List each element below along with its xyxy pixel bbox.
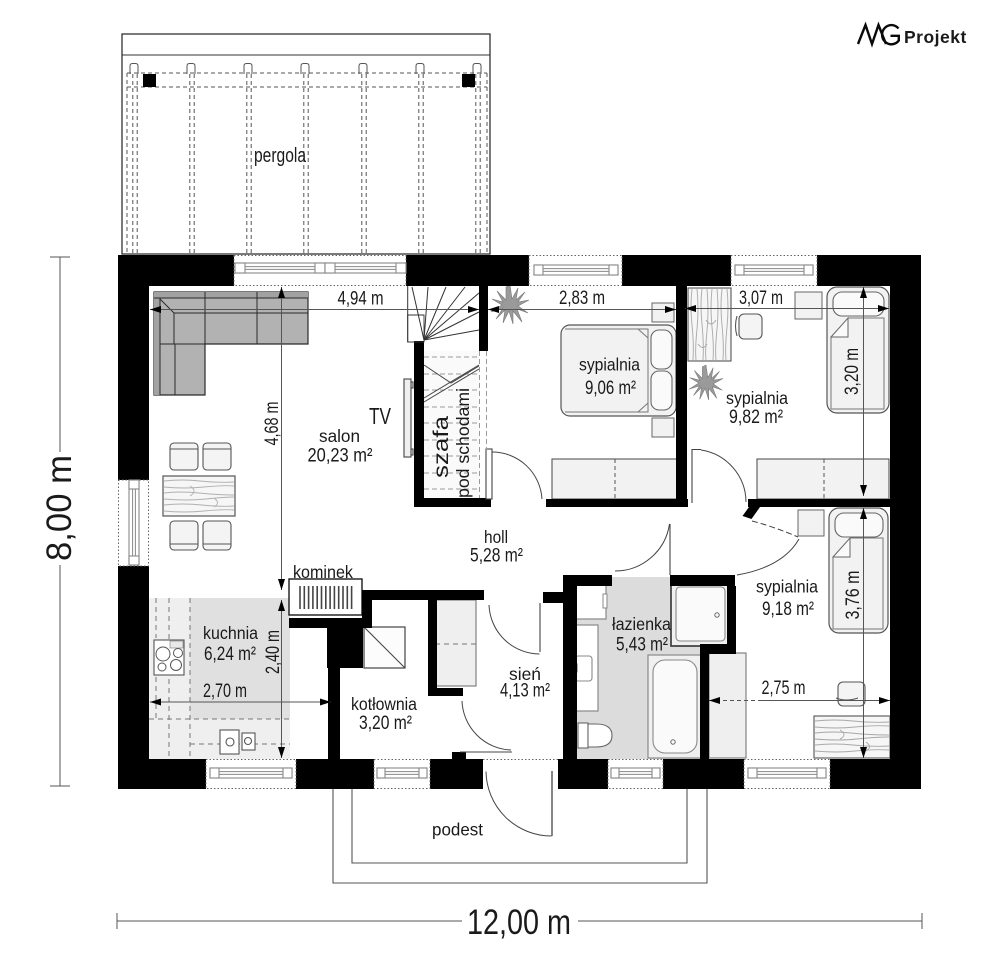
svg-text:4,68 m: 4,68 m — [262, 402, 283, 446]
svg-text:9,18 m²: 9,18 m² — [762, 599, 814, 620]
svg-text:pergola: pergola — [254, 145, 307, 167]
svg-text:3,76 m: 3,76 m — [843, 571, 864, 620]
svg-text:kotłownia: kotłownia — [351, 694, 417, 714]
svg-text:2,40 m: 2,40 m — [263, 630, 284, 674]
svg-text:sypialnia: sypialnia — [579, 355, 640, 375]
svg-text:9,82 m²: 9,82 m² — [729, 407, 783, 428]
svg-text:pod schodami: pod schodami — [453, 388, 473, 498]
svg-text:6,24 m²: 6,24 m² — [204, 644, 256, 665]
svg-text:sypialnia: sypialnia — [726, 388, 788, 408]
svg-text:9,06 m²: 9,06 m² — [585, 378, 636, 399]
svg-text:12,00 m: 12,00 m — [467, 903, 571, 942]
svg-text:3,07 m: 3,07 m — [739, 288, 783, 309]
svg-text:5,28 m²: 5,28 m² — [470, 546, 523, 567]
svg-text:8,00 m: 8,00 m — [40, 455, 79, 561]
svg-text:2,83 m: 2,83 m — [559, 288, 605, 309]
svg-text:kuchnia: kuchnia — [203, 623, 258, 643]
svg-text:5,43 m²: 5,43 m² — [616, 635, 668, 656]
svg-text:TV: TV — [369, 403, 391, 429]
svg-text:Projekt: Projekt — [904, 27, 967, 47]
svg-text:3,20 m: 3,20 m — [842, 348, 863, 395]
svg-text:4,13 m²: 4,13 m² — [500, 681, 550, 702]
svg-text:szafa: szafa — [430, 416, 453, 478]
svg-text:3,20 m²: 3,20 m² — [359, 713, 412, 734]
svg-text:podest: podest — [432, 820, 483, 840]
svg-text:20,23 m²: 20,23 m² — [308, 446, 373, 467]
svg-text:2,75 m: 2,75 m — [762, 678, 806, 699]
svg-text:holl: holl — [484, 527, 508, 547]
svg-text:4,94 m: 4,94 m — [338, 289, 384, 310]
svg-text:kominek: kominek — [293, 562, 353, 582]
svg-text:salon: salon — [319, 426, 360, 446]
svg-text:łazienka: łazienka — [612, 614, 671, 634]
svg-text:sypialnia: sypialnia — [756, 577, 818, 597]
svg-text:2,70 m: 2,70 m — [203, 681, 247, 702]
